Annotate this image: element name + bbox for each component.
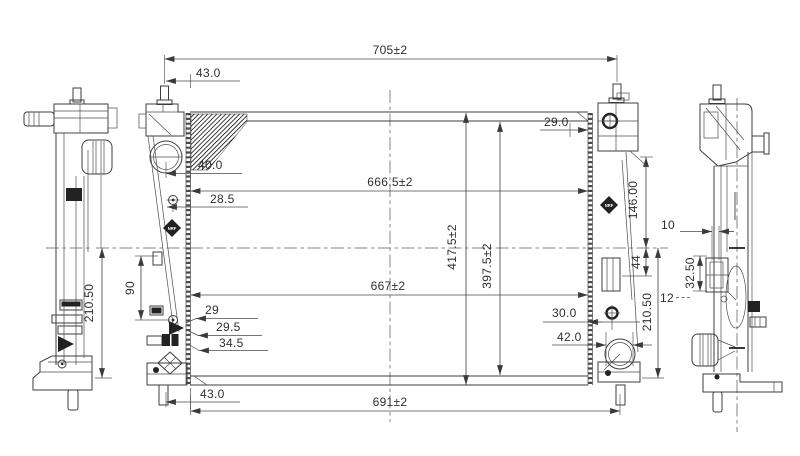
inlet-elbow-pipe [82,140,112,174]
dim-clip-offset: 10 [661,218,675,232]
side-pin [713,85,721,100]
dim-core-width-top: 666.5±2 [367,175,412,189]
dim-right-bracket-drop: 146.00 [626,181,640,220]
part-marking [734,192,736,220]
side-tab [748,301,760,312]
shroud-ellipse [726,266,746,328]
dim-core-height-inner: 397.5±2 [480,243,494,288]
side-pin-bottom [713,392,722,412]
dim-left-mount-height: 210.50 [82,284,96,323]
side-foot-bracket [33,356,92,390]
right-mount-pin-bottom [616,385,625,405]
right-side-view [692,85,782,432]
left-mount-pin-top [161,86,169,100]
right-top-bracket [598,103,638,151]
side-stub-pipe [752,136,764,152]
dim-lower-left-2: 29.5 [216,320,241,334]
dim-outlet-diameter: 42.0 [557,330,582,344]
radiator-technical-drawing: NRF [0,0,800,456]
nrf-logo-text: NRF [168,226,177,231]
left-top-bracket [146,104,184,136]
right-edge-tab [602,258,620,291]
side-pin-bottom [68,390,78,410]
right-tank: NRF [598,84,648,405]
dim-left-tab-span: 90 [123,281,137,295]
core [186,112,593,385]
dim-core-width-bottom: 667±2 [371,279,406,293]
side-clip [66,188,82,201]
dim-overall-width: 705±2 [373,43,408,57]
dim-bottom-width: 691±2 [373,395,408,409]
dim-filler-offset: 40.0 [198,158,223,172]
dim-drain-offset: 30.0 [552,306,577,320]
dim-right-mount-height: 210.50 [640,293,654,332]
drawing-svg: NRF [0,0,800,456]
left-tank: NRF [139,86,187,405]
dim-bottom-left-offset: 43.0 [200,387,225,401]
dim-right-tab-height: 44 [629,255,643,269]
left-side-view [24,88,117,410]
dim-top-right-offset: 29.0 [544,115,569,129]
nrf-logo-text: NRF [605,203,614,208]
dim-top-left-offset: 43.0 [196,66,221,80]
side-top-bracket [54,104,108,133]
dim-lower-left-1: 29 [205,303,219,317]
dim-clip-gap: 12 [660,291,674,305]
left-edge-tab-upper [153,252,162,265]
front-view: NRF [96,84,668,422]
dim-lower-left-3: 34.5 [219,336,244,350]
dim-clip-height: 32.50 [683,257,697,289]
dim-upper-bolt-offset: 28.5 [210,192,235,206]
dim-core-height: 417.5±2 [445,224,459,269]
